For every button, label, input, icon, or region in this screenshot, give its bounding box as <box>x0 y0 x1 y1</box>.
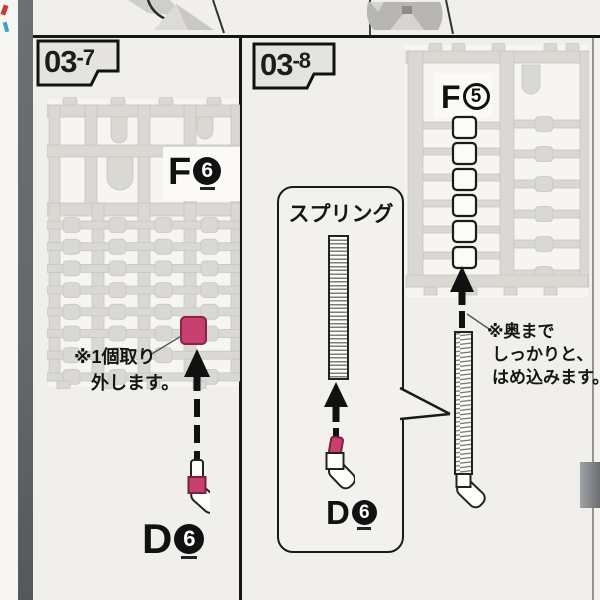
removal-note-line1: ※1個取り <box>74 344 179 370</box>
number-underline <box>357 527 371 530</box>
up-arrow-icon <box>450 266 474 292</box>
section-rule <box>33 35 600 38</box>
circled-number: 6 <box>193 157 221 185</box>
step-number: 03-8 <box>260 47 310 83</box>
insert-arrow-up-middle <box>321 380 351 442</box>
part-d6-graphic <box>148 458 210 522</box>
number-underline <box>181 556 197 559</box>
part-label-d6-middle: D 6 <box>326 496 377 530</box>
part-pink-collar <box>189 477 206 493</box>
circled-number: 6 <box>352 500 377 525</box>
part-d6-graphic-middle <box>303 436 355 500</box>
shaft-joint <box>457 474 471 487</box>
insert-note-line1: ※奥まで <box>487 320 600 343</box>
part-sleeve <box>327 453 344 469</box>
step-number: 03-7 <box>44 44 94 80</box>
page-spine-bar <box>18 0 33 600</box>
previous-step-art-right <box>350 0 458 34</box>
part-slot <box>453 169 476 190</box>
part-label-d6-left: D 6 <box>142 518 204 560</box>
number-underline <box>200 187 215 190</box>
part-letter: D <box>142 518 172 560</box>
page-edge-tab <box>580 462 600 508</box>
part-slot <box>453 117 476 138</box>
dashed-path <box>459 311 465 328</box>
step-number-sub: -8 <box>292 48 310 73</box>
up-arrow-icon <box>184 349 210 377</box>
spring-box-title: スプリング <box>287 198 395 228</box>
removal-note-line2: 外します。 <box>91 370 179 396</box>
insert-note-line2: しっかりと、 <box>492 343 600 366</box>
sprue-runner-f5 <box>404 43 589 301</box>
page-right-edge-line <box>592 38 594 600</box>
spring-graphic <box>328 235 349 380</box>
part-slot <box>453 143 476 164</box>
insert-arrow-up <box>182 347 212 465</box>
scan-margin <box>0 0 18 600</box>
removal-note: ※1個取り 外します。 <box>74 344 179 396</box>
step-number-sub: -7 <box>76 45 94 70</box>
step-badge-03-7: 03-7 <box>36 39 120 87</box>
dashed-path <box>194 399 200 463</box>
sprue-letter: F <box>168 153 191 191</box>
sprue-letter: F <box>441 81 461 113</box>
insert-note-line3: はめ込みます。 <box>492 366 600 389</box>
part-letter: D <box>326 496 350 529</box>
part-slot <box>453 195 476 216</box>
part-label-f5: F 5 <box>441 81 490 113</box>
spring-wrapped-shaft <box>455 332 472 474</box>
circled-number: 6 <box>174 524 204 554</box>
step-number-main: 03 <box>260 47 292 82</box>
previous-step-art-left <box>118 0 236 34</box>
part-label-f6: F 6 <box>168 153 221 191</box>
insert-note: ※奥まで しっかりと、 はめ込みます。 <box>487 320 600 389</box>
step-number-main: 03 <box>44 44 76 79</box>
page-right-margin <box>594 38 600 600</box>
circled-number: 5 <box>463 83 490 110</box>
spring-on-shaft-assembly <box>443 262 495 518</box>
scanned-manual-page: 03-7 <box>0 0 600 600</box>
up-arrow-icon <box>324 382 348 407</box>
step-badge-03-8: 03-8 <box>252 42 336 90</box>
part-slot <box>453 221 476 242</box>
